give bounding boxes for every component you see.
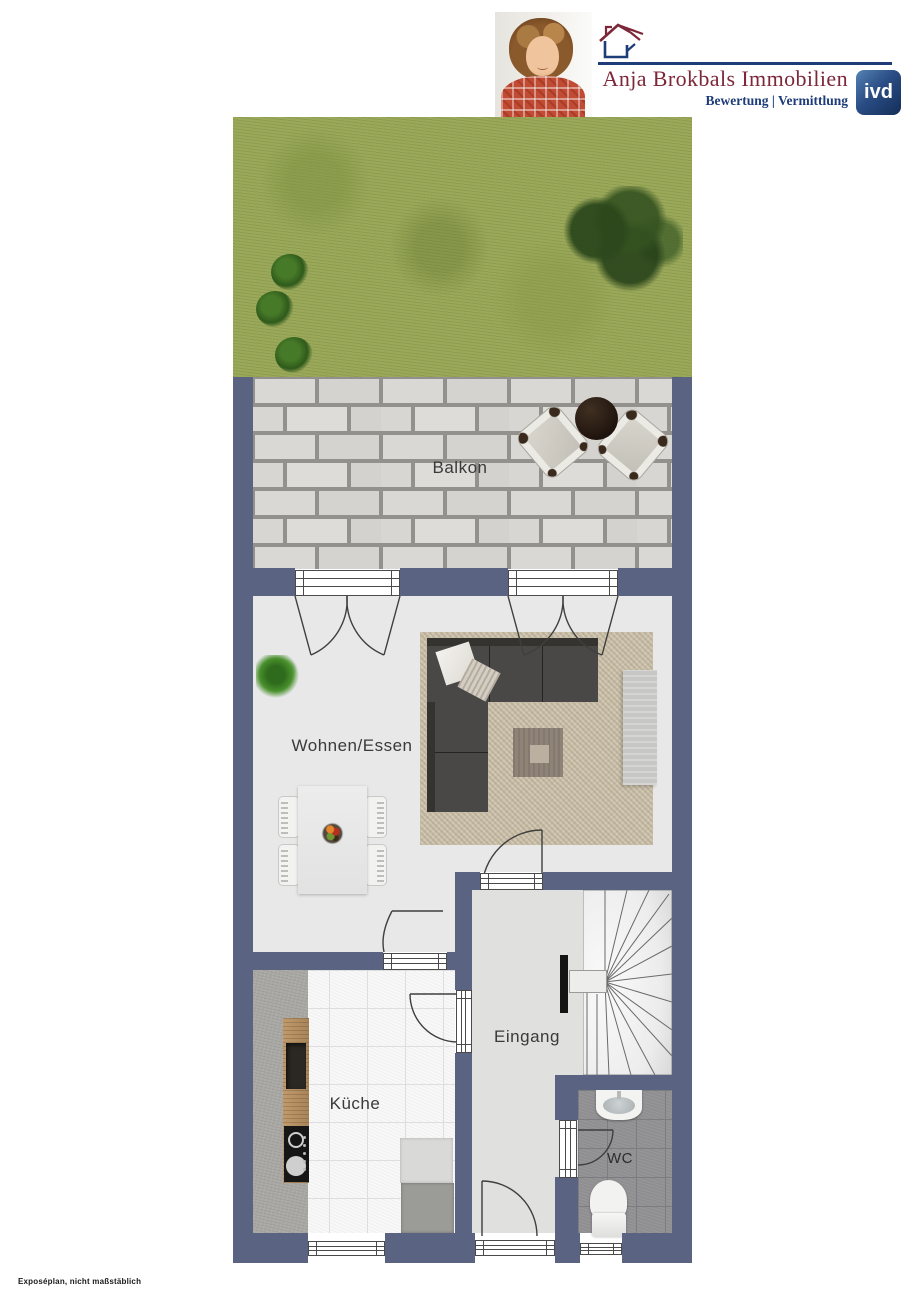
garden-bush — [271, 254, 309, 290]
kitchen-cabinet — [400, 1138, 453, 1183]
wall — [400, 568, 508, 596]
corner-sofa — [427, 702, 488, 812]
kitchen-sink — [286, 1043, 306, 1089]
patio-table — [575, 397, 618, 440]
toilet-tank — [592, 1213, 626, 1237]
houseplant — [256, 655, 300, 699]
cooktop — [284, 1126, 309, 1182]
wall — [233, 377, 253, 1263]
garden-bush — [275, 337, 313, 373]
wall — [622, 1233, 692, 1263]
wall — [447, 952, 472, 970]
wall — [455, 1053, 472, 1233]
dining-chair — [366, 845, 386, 885]
wall — [555, 1233, 580, 1263]
wc-door-frame — [559, 1120, 577, 1178]
door-frame — [383, 953, 447, 970]
wall — [253, 952, 383, 970]
room-label-eingang: Eingang — [457, 1027, 597, 1047]
door-frame — [480, 873, 543, 890]
sideboard — [623, 670, 657, 785]
wall — [233, 1233, 308, 1263]
wall — [555, 1075, 672, 1090]
house-icon — [596, 18, 648, 62]
wc-sink — [596, 1090, 642, 1120]
plan-disclaimer-note: Exposéplan, nicht maßstäblich — [18, 1277, 141, 1286]
portrait-plaid-shirt — [501, 76, 585, 120]
dining-chair — [279, 845, 299, 885]
balcony-door-frame — [295, 570, 400, 596]
garden-bush — [256, 291, 294, 327]
wall — [543, 872, 672, 890]
company-tagline: Bewertung | Vermittlung — [556, 93, 848, 109]
agent-portrait-photo — [495, 12, 592, 120]
wall — [555, 1177, 578, 1233]
garden-tree — [557, 186, 683, 292]
fruit-bowl — [321, 822, 344, 845]
header-divider-line — [598, 62, 892, 65]
room-label-kueche: Küche — [305, 1094, 405, 1114]
floorplan-page: Anja Brokbals Immobilien Bewertung | Ver… — [0, 0, 920, 1302]
stair-landing — [570, 971, 606, 992]
wall — [672, 377, 692, 1263]
dining-chair — [279, 797, 299, 837]
kitchen-window — [308, 1241, 385, 1256]
portrait-face — [526, 36, 559, 76]
room-label-wohnen-essen: Wohnen/Essen — [262, 736, 442, 756]
room-label-balkon: Balkon — [380, 458, 540, 478]
wall — [455, 872, 472, 990]
kitchen-cabinet — [401, 1183, 454, 1233]
dining-chair — [366, 797, 386, 837]
front-door-frame — [475, 1240, 555, 1256]
portrait-smile — [537, 64, 548, 70]
company-name: Anja Brokbals Immobilien — [556, 66, 848, 92]
wall — [385, 1233, 475, 1263]
coffee-table-top — [530, 745, 549, 763]
wall — [555, 1090, 578, 1120]
wall — [253, 568, 295, 596]
wall — [618, 568, 672, 596]
wc-window — [580, 1243, 622, 1255]
ivd-association-badge: ivd — [856, 70, 901, 115]
balcony-door-frame — [508, 570, 618, 596]
stair-handrail — [560, 955, 568, 1013]
room-label-wc: WC — [598, 1150, 642, 1167]
